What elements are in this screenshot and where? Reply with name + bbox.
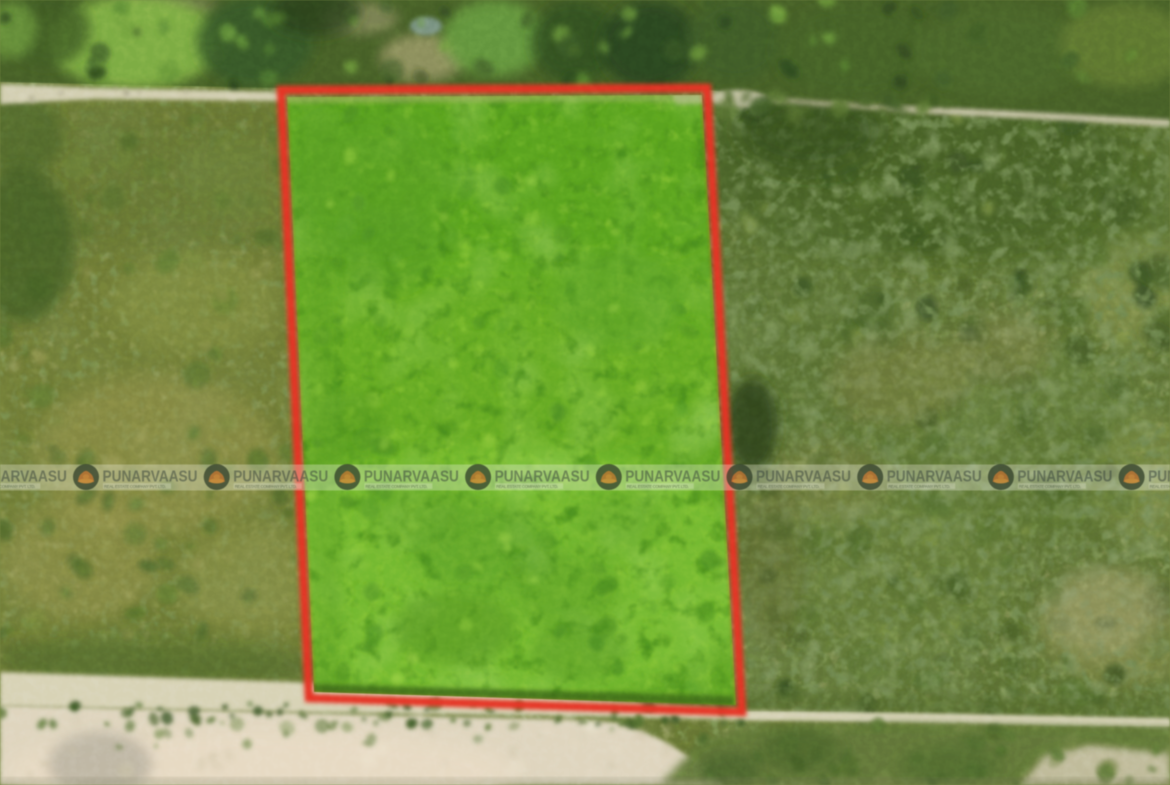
svg-text:REAL ESTATE COMPANY PVT. LTD.: REAL ESTATE COMPANY PVT. LTD. xyxy=(0,484,35,489)
svg-text:REAL ESTATE COMPANY PVT. LTD.: REAL ESTATE COMPANY PVT. LTD. xyxy=(758,484,820,489)
svg-text:REAL ESTATE COMPANY PVT. LTD.: REAL ESTATE COMPANY PVT. LTD. xyxy=(1150,484,1170,489)
svg-text:REAL ESTATE COMPANY PVT. LTD.: REAL ESTATE COMPANY PVT. LTD. xyxy=(1019,484,1081,489)
svg-text:REAL ESTATE COMPANY PVT. LTD.: REAL ESTATE COMPANY PVT. LTD. xyxy=(888,484,950,489)
svg-text:REAL ESTATE COMPANY PVT. LTD.: REAL ESTATE COMPANY PVT. LTD. xyxy=(365,484,427,489)
svg-text:REAL ESTATE COMPANY PVT. LTD.: REAL ESTATE COMPANY PVT. LTD. xyxy=(104,484,166,489)
svg-text:REAL ESTATE COMPANY PVT. LTD.: REAL ESTATE COMPANY PVT. LTD. xyxy=(235,484,297,489)
svg-text:REAL ESTATE COMPANY PVT. LTD.: REAL ESTATE COMPANY PVT. LTD. xyxy=(496,484,558,489)
svg-text:REAL ESTATE COMPANY PVT. LTD.: REAL ESTATE COMPANY PVT. LTD. xyxy=(627,484,689,489)
